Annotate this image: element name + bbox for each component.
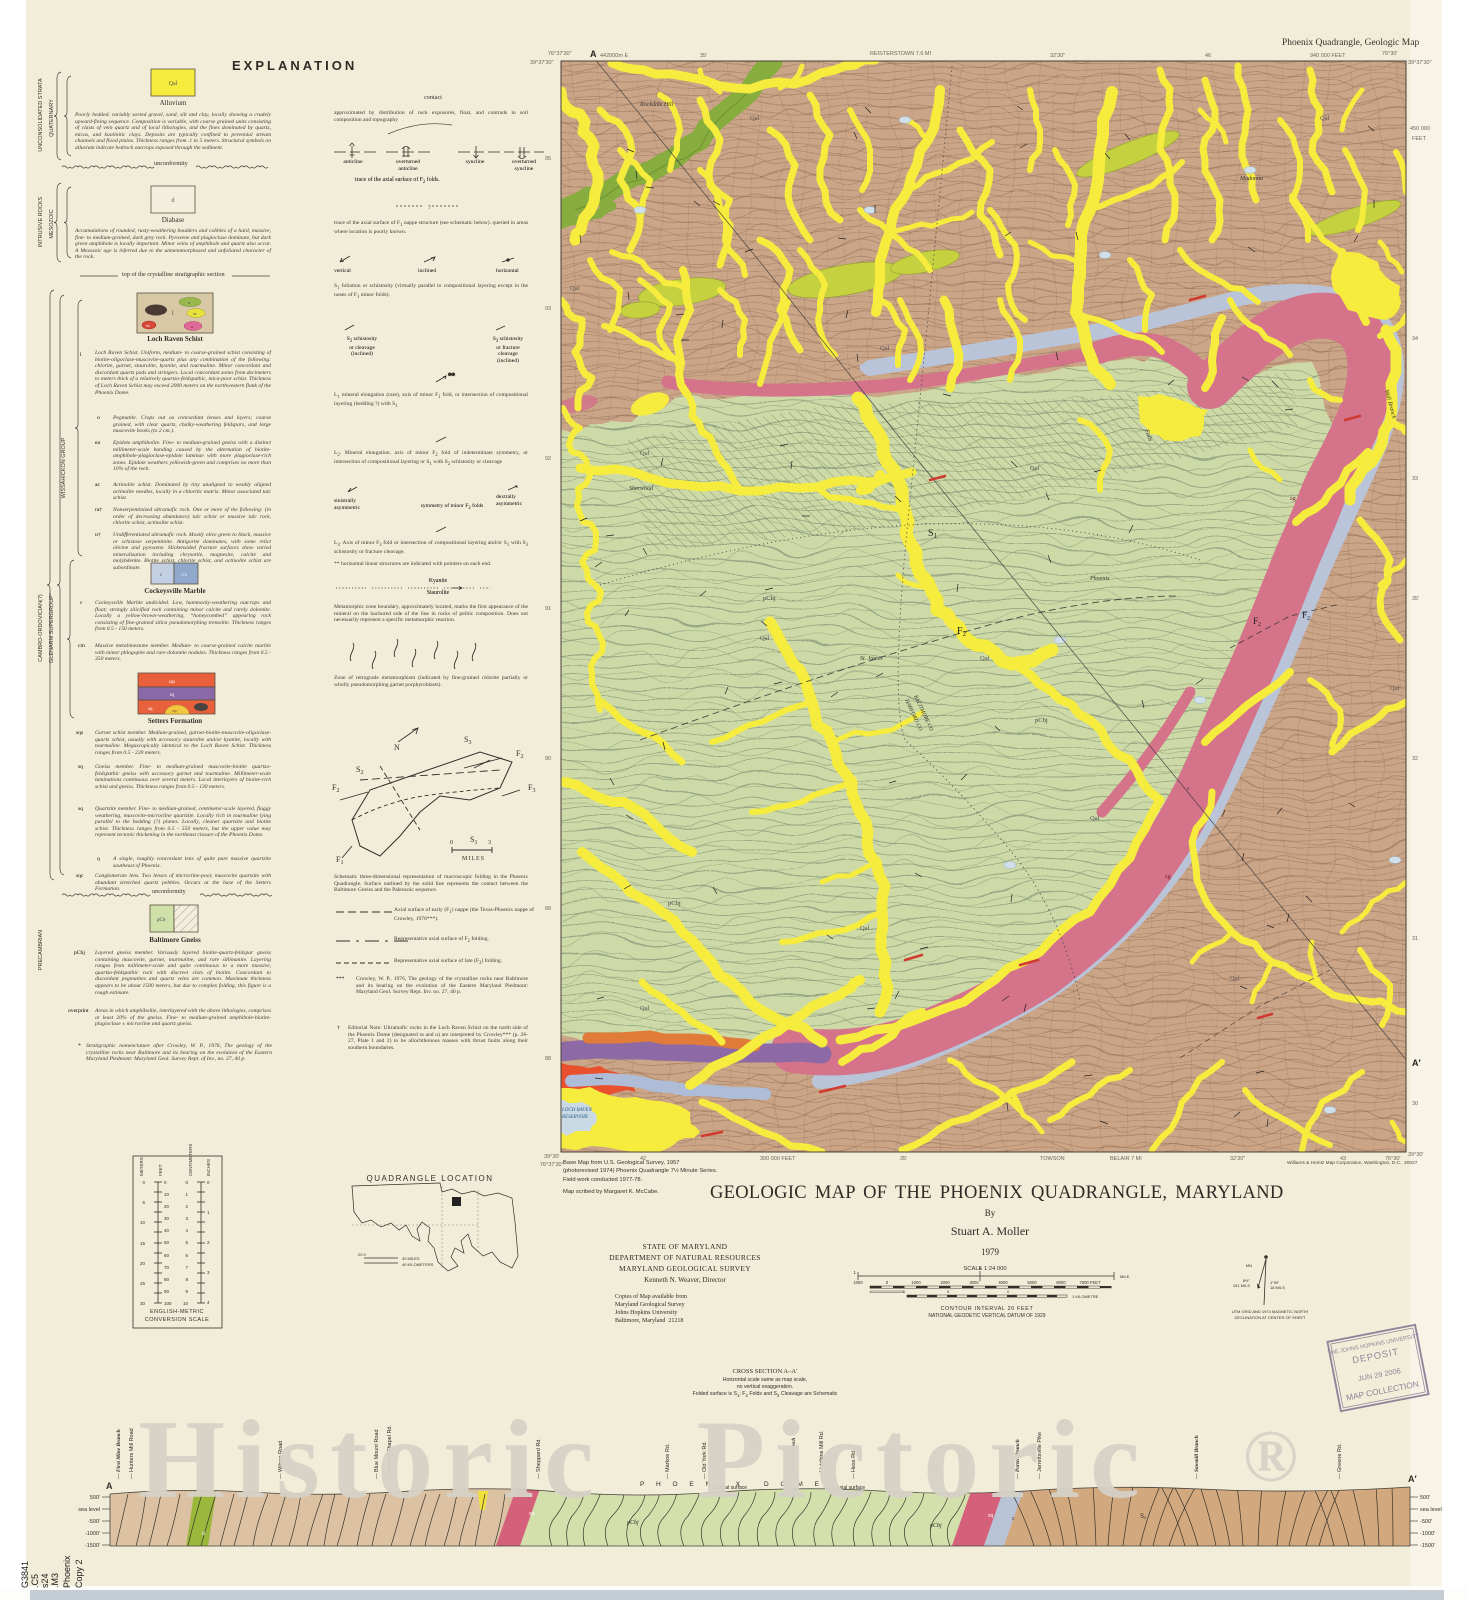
svg-text:MILES: MILES bbox=[462, 856, 485, 862]
svg-text:90: 90 bbox=[545, 756, 551, 762]
svg-text:MILE: MILE bbox=[1120, 1274, 1130, 1279]
svg-text:Phoenix: Phoenix bbox=[1089, 576, 1110, 582]
svg-text:A′: A′ bbox=[1408, 1474, 1417, 1484]
svg-text:N: N bbox=[394, 743, 400, 752]
svg-text:LOCH RAVEN: LOCH RAVEN bbox=[561, 1108, 593, 1113]
svg-text:50: 50 bbox=[164, 1240, 170, 1245]
svg-text:90: 90 bbox=[164, 1289, 170, 1294]
svg-text:0: 0 bbox=[1007, 1290, 1009, 1294]
svg-text:30: 30 bbox=[140, 1301, 146, 1306]
svg-text:1: 1 bbox=[903, 1290, 905, 1294]
svg-text:Phoenix: Phoenix bbox=[62, 1555, 72, 1588]
svg-text:u: u bbox=[188, 300, 190, 305]
svg-text:3: 3 bbox=[185, 1216, 188, 1221]
svg-text:32'30": 32'30" bbox=[1230, 1156, 1245, 1162]
svg-text:32: 32 bbox=[1412, 756, 1418, 762]
svg-text:2: 2 bbox=[185, 1204, 188, 1209]
svg-text:QUADRANGLE LOCATION: QUADRANGLE LOCATION bbox=[366, 1174, 493, 1183]
svg-text:CONTOUR INTERVAL 20 FEET: CONTOUR INTERVAL 20 FEET bbox=[940, 1306, 1033, 1312]
svg-text:70: 70 bbox=[164, 1265, 170, 1270]
svg-text:A: A bbox=[590, 49, 597, 59]
svg-text:sg: sg bbox=[1290, 495, 1297, 502]
svg-text:25: 25 bbox=[140, 1281, 146, 1286]
svg-text:UTM GRID AND 1974 MAGNETIC NOR: UTM GRID AND 1974 MAGNETIC NORTH bbox=[1232, 1309, 1309, 1314]
svg-text:ea: ea bbox=[146, 323, 150, 328]
svg-text:40: 40 bbox=[164, 1228, 170, 1233]
svg-text:20: 20 bbox=[164, 1204, 170, 1209]
svg-text:39°30': 39°30' bbox=[1408, 1152, 1424, 1158]
svg-text:46: 46 bbox=[1205, 53, 1211, 59]
svg-text:MN: MN bbox=[1246, 1263, 1252, 1268]
svg-text:Madonna: Madonna bbox=[1239, 176, 1263, 182]
svg-text:?: ? bbox=[428, 205, 431, 211]
svg-text:ENGLISH-METRIC: ENGLISH-METRIC bbox=[150, 1309, 204, 1315]
svg-text:s24: s24 bbox=[40, 1573, 50, 1588]
svg-text:4: 4 bbox=[207, 1300, 210, 1305]
svg-text:Qal: Qal bbox=[880, 345, 890, 352]
svg-text:15: 15 bbox=[140, 1241, 146, 1246]
svg-text:0: 0 bbox=[886, 1280, 889, 1285]
svg-text:10: 10 bbox=[140, 1220, 146, 1225]
svg-text:Qal: Qal bbox=[640, 1005, 650, 1012]
svg-text:2000: 2000 bbox=[940, 1280, 950, 1285]
svg-text:Qal: Qal bbox=[1390, 685, 1400, 692]
svg-text:0: 0 bbox=[185, 1180, 188, 1185]
svg-text:89: 89 bbox=[545, 906, 551, 912]
svg-text:Qal: Qal bbox=[1320, 115, 1330, 122]
svg-text:Qal: Qal bbox=[1030, 465, 1040, 472]
svg-text:18 MILS: 18 MILS bbox=[1270, 1285, 1285, 1290]
svg-text:3: 3 bbox=[207, 1270, 210, 1275]
svg-text:.C5: .C5 bbox=[30, 1574, 40, 1588]
svg-text:6: 6 bbox=[185, 1253, 188, 1258]
svg-text:CENTIMETERS: CENTIMETERS bbox=[188, 1144, 193, 1176]
svg-text:TOWSON: TOWSON bbox=[1040, 1156, 1065, 1162]
svg-text:7000 FEET: 7000 FEET bbox=[1079, 1280, 1101, 1285]
svg-text:A: A bbox=[106, 1481, 113, 1491]
svg-text:SCALE 1:24 000: SCALE 1:24 000 bbox=[963, 1266, 1006, 1272]
svg-text:F2: F2 bbox=[516, 749, 523, 760]
svg-text:450 000: 450 000 bbox=[1410, 126, 1430, 132]
svg-text:Qal: Qal bbox=[860, 925, 870, 932]
svg-text:0: 0 bbox=[207, 1180, 210, 1185]
svg-text:500′: 500′ bbox=[1420, 1495, 1430, 1501]
svg-text:1000: 1000 bbox=[853, 1280, 863, 1285]
svg-text:sg: sg bbox=[1165, 873, 1172, 880]
svg-text:4000: 4000 bbox=[998, 1280, 1008, 1285]
svg-text:Qal: Qal bbox=[169, 81, 178, 87]
svg-text:d: d bbox=[202, 1531, 205, 1537]
svg-text:7: 7 bbox=[185, 1265, 188, 1270]
svg-text:Qal: Qal bbox=[640, 450, 650, 457]
svg-text:940 000 FEET: 940 000 FEET bbox=[1310, 53, 1346, 59]
svg-text:8: 8 bbox=[185, 1277, 188, 1282]
svg-text:sq: sq bbox=[148, 707, 153, 712]
svg-text:10: 10 bbox=[183, 1301, 189, 1306]
svg-text:S1: S1 bbox=[470, 835, 477, 846]
svg-text:151 MILS: 151 MILS bbox=[1233, 1283, 1250, 1288]
svg-text:REISTERSTOWN 7.6 MI: REISTERSTOWN 7.6 MI bbox=[870, 51, 931, 57]
svg-text:40 MILES: 40 MILES bbox=[402, 1256, 420, 1261]
svg-text:sea level: sea level bbox=[1420, 1507, 1442, 1513]
svg-text:sqs: sqs bbox=[169, 680, 175, 685]
svg-text:FEET: FEET bbox=[158, 1164, 163, 1176]
svg-text:1: 1 bbox=[207, 1210, 210, 1215]
svg-text:76°37'30": 76°37'30" bbox=[548, 51, 572, 57]
svg-text:1000: 1000 bbox=[911, 1280, 921, 1285]
svg-text:Copy 2: Copy 2 bbox=[74, 1559, 84, 1588]
svg-text:5: 5 bbox=[947, 1290, 949, 1294]
svg-text:33: 33 bbox=[1412, 476, 1418, 482]
svg-text:Rockdale Hill: Rockdale Hill bbox=[639, 102, 673, 108]
svg-text:JUN 29 2006: JUN 29 2006 bbox=[1357, 1366, 1401, 1383]
svg-text:92: 92 bbox=[545, 456, 551, 462]
svg-text:-500′: -500′ bbox=[1420, 1519, 1432, 1525]
svg-text:INCHES: INCHES bbox=[206, 1159, 211, 1176]
svg-text:35': 35' bbox=[1412, 596, 1419, 602]
svg-text:31: 31 bbox=[1412, 936, 1418, 942]
svg-text:32'30": 32'30" bbox=[1050, 53, 1065, 59]
svg-text:2: 2 bbox=[207, 1240, 210, 1245]
svg-text:0: 0 bbox=[164, 1180, 167, 1185]
svg-text:d: d bbox=[172, 198, 175, 204]
svg-text:pCb: pCb bbox=[157, 918, 166, 923]
svg-text:6000: 6000 bbox=[1056, 1280, 1066, 1285]
svg-text:c: c bbox=[1187, 785, 1190, 792]
svg-text:76°37'30": 76°37'30" bbox=[540, 1162, 564, 1168]
svg-text:G3841: G3841 bbox=[20, 1561, 30, 1588]
svg-text:3: 3 bbox=[488, 840, 491, 846]
svg-text:CONVERSION SCALE: CONVERSION SCALE bbox=[145, 1317, 210, 1323]
svg-text:91: 91 bbox=[545, 606, 551, 612]
svg-text:20: 20 bbox=[140, 1261, 146, 1266]
svg-text:Qal: Qal bbox=[750, 115, 760, 122]
svg-text:S2: S2 bbox=[356, 765, 363, 776]
svg-text:ne: ne bbox=[193, 311, 197, 316]
svg-text:Sherwood: Sherwood bbox=[629, 486, 654, 492]
svg-text:40 KILOMETERS: 40 KILOMETERS bbox=[402, 1262, 434, 1267]
svg-text:sq: sq bbox=[170, 693, 175, 698]
svg-text:80: 80 bbox=[164, 1277, 170, 1282]
svg-text:**: ** bbox=[448, 372, 456, 380]
svg-text:FEET: FEET bbox=[1412, 136, 1427, 142]
svg-text:F1: F1 bbox=[336, 855, 343, 866]
svg-text:sqc: sqc bbox=[172, 708, 178, 713]
svg-text:cm: cm bbox=[181, 573, 187, 578]
svg-text:.M3: .M3 bbox=[50, 1573, 60, 1588]
svg-text:93: 93 bbox=[545, 306, 551, 312]
svg-text:9: 9 bbox=[185, 1289, 188, 1294]
svg-text:a: a bbox=[191, 324, 193, 329]
svg-text:— First Mine Branch: — First Mine Branch bbox=[116, 1429, 122, 1480]
svg-text:35': 35' bbox=[900, 1156, 907, 1162]
svg-text:DECLINATION AT CENTER OF SHEET: DECLINATION AT CENTER OF SHEET bbox=[1235, 1315, 1306, 1320]
svg-text:Qal: Qal bbox=[1090, 815, 1100, 822]
svg-text:34: 34 bbox=[1412, 336, 1418, 342]
svg-text:4: 4 bbox=[185, 1228, 188, 1233]
svg-text:76°30': 76°30' bbox=[1382, 51, 1398, 57]
svg-text:BELAIR 7 MI: BELAIR 7 MI bbox=[1110, 1156, 1142, 1162]
svg-text:5000: 5000 bbox=[1027, 1280, 1037, 1285]
svg-text:10: 10 bbox=[164, 1192, 170, 1197]
svg-text:F2: F2 bbox=[332, 783, 339, 794]
svg-text:100: 100 bbox=[164, 1301, 172, 1306]
svg-text:88: 88 bbox=[545, 1056, 551, 1062]
svg-text:35': 35' bbox=[700, 53, 707, 59]
svg-text:500′: 500′ bbox=[90, 1495, 100, 1501]
svg-text:NATIONAL GEODETIC VERTICAL DAT: NATIONAL GEODETIC VERTICAL DATUM OF 1929 bbox=[928, 1313, 1045, 1319]
svg-text:39°37'30": 39°37'30" bbox=[530, 60, 554, 66]
svg-text:0: 0 bbox=[142, 1180, 145, 1185]
svg-text:Qal: Qal bbox=[570, 285, 580, 292]
svg-text:39°37'30": 39°37'30" bbox=[1408, 60, 1432, 66]
svg-text:1: 1 bbox=[185, 1192, 188, 1197]
svg-text:pCbj: pCbj bbox=[1035, 717, 1048, 724]
svg-text:St. James: St. James bbox=[860, 656, 883, 662]
svg-text:1: 1 bbox=[853, 1270, 856, 1275]
svg-text:30: 30 bbox=[1412, 1101, 1418, 1107]
svg-text:Qal: Qal bbox=[760, 635, 770, 642]
svg-text:Qal: Qal bbox=[980, 655, 990, 662]
svg-text:-1000′: -1000′ bbox=[1420, 1531, 1435, 1537]
svg-text:— Hunters Mill Road: — Hunters Mill Road bbox=[129, 1428, 135, 1479]
svg-text:0: 0 bbox=[450, 840, 453, 846]
svg-text:20 0: 20 0 bbox=[358, 1252, 367, 1257]
svg-text:1 KILOMETRE: 1 KILOMETRE bbox=[1072, 1294, 1099, 1299]
svg-text:3000: 3000 bbox=[969, 1280, 979, 1285]
svg-text:A′: A′ bbox=[1412, 1058, 1421, 1068]
svg-text:442000m E: 442000m E bbox=[600, 53, 628, 59]
svg-text:5: 5 bbox=[142, 1200, 145, 1205]
svg-text:S3: S3 bbox=[464, 735, 471, 746]
svg-text:39°30': 39°30' bbox=[544, 1154, 560, 1160]
svg-text:Qal: Qal bbox=[1230, 975, 1240, 982]
svg-text:pCbj: pCbj bbox=[668, 900, 681, 907]
svg-text:-1500′: -1500′ bbox=[1420, 1543, 1435, 1549]
svg-text:METERS: METERS bbox=[139, 1157, 144, 1176]
svg-text:F3: F3 bbox=[528, 783, 535, 794]
svg-text:RESERVOIR: RESERVOIR bbox=[561, 1115, 588, 1120]
svg-text:60: 60 bbox=[164, 1253, 170, 1258]
svg-text:30: 30 bbox=[164, 1216, 170, 1221]
svg-text:pCbj: pCbj bbox=[763, 595, 776, 602]
svg-text:5: 5 bbox=[185, 1240, 188, 1245]
